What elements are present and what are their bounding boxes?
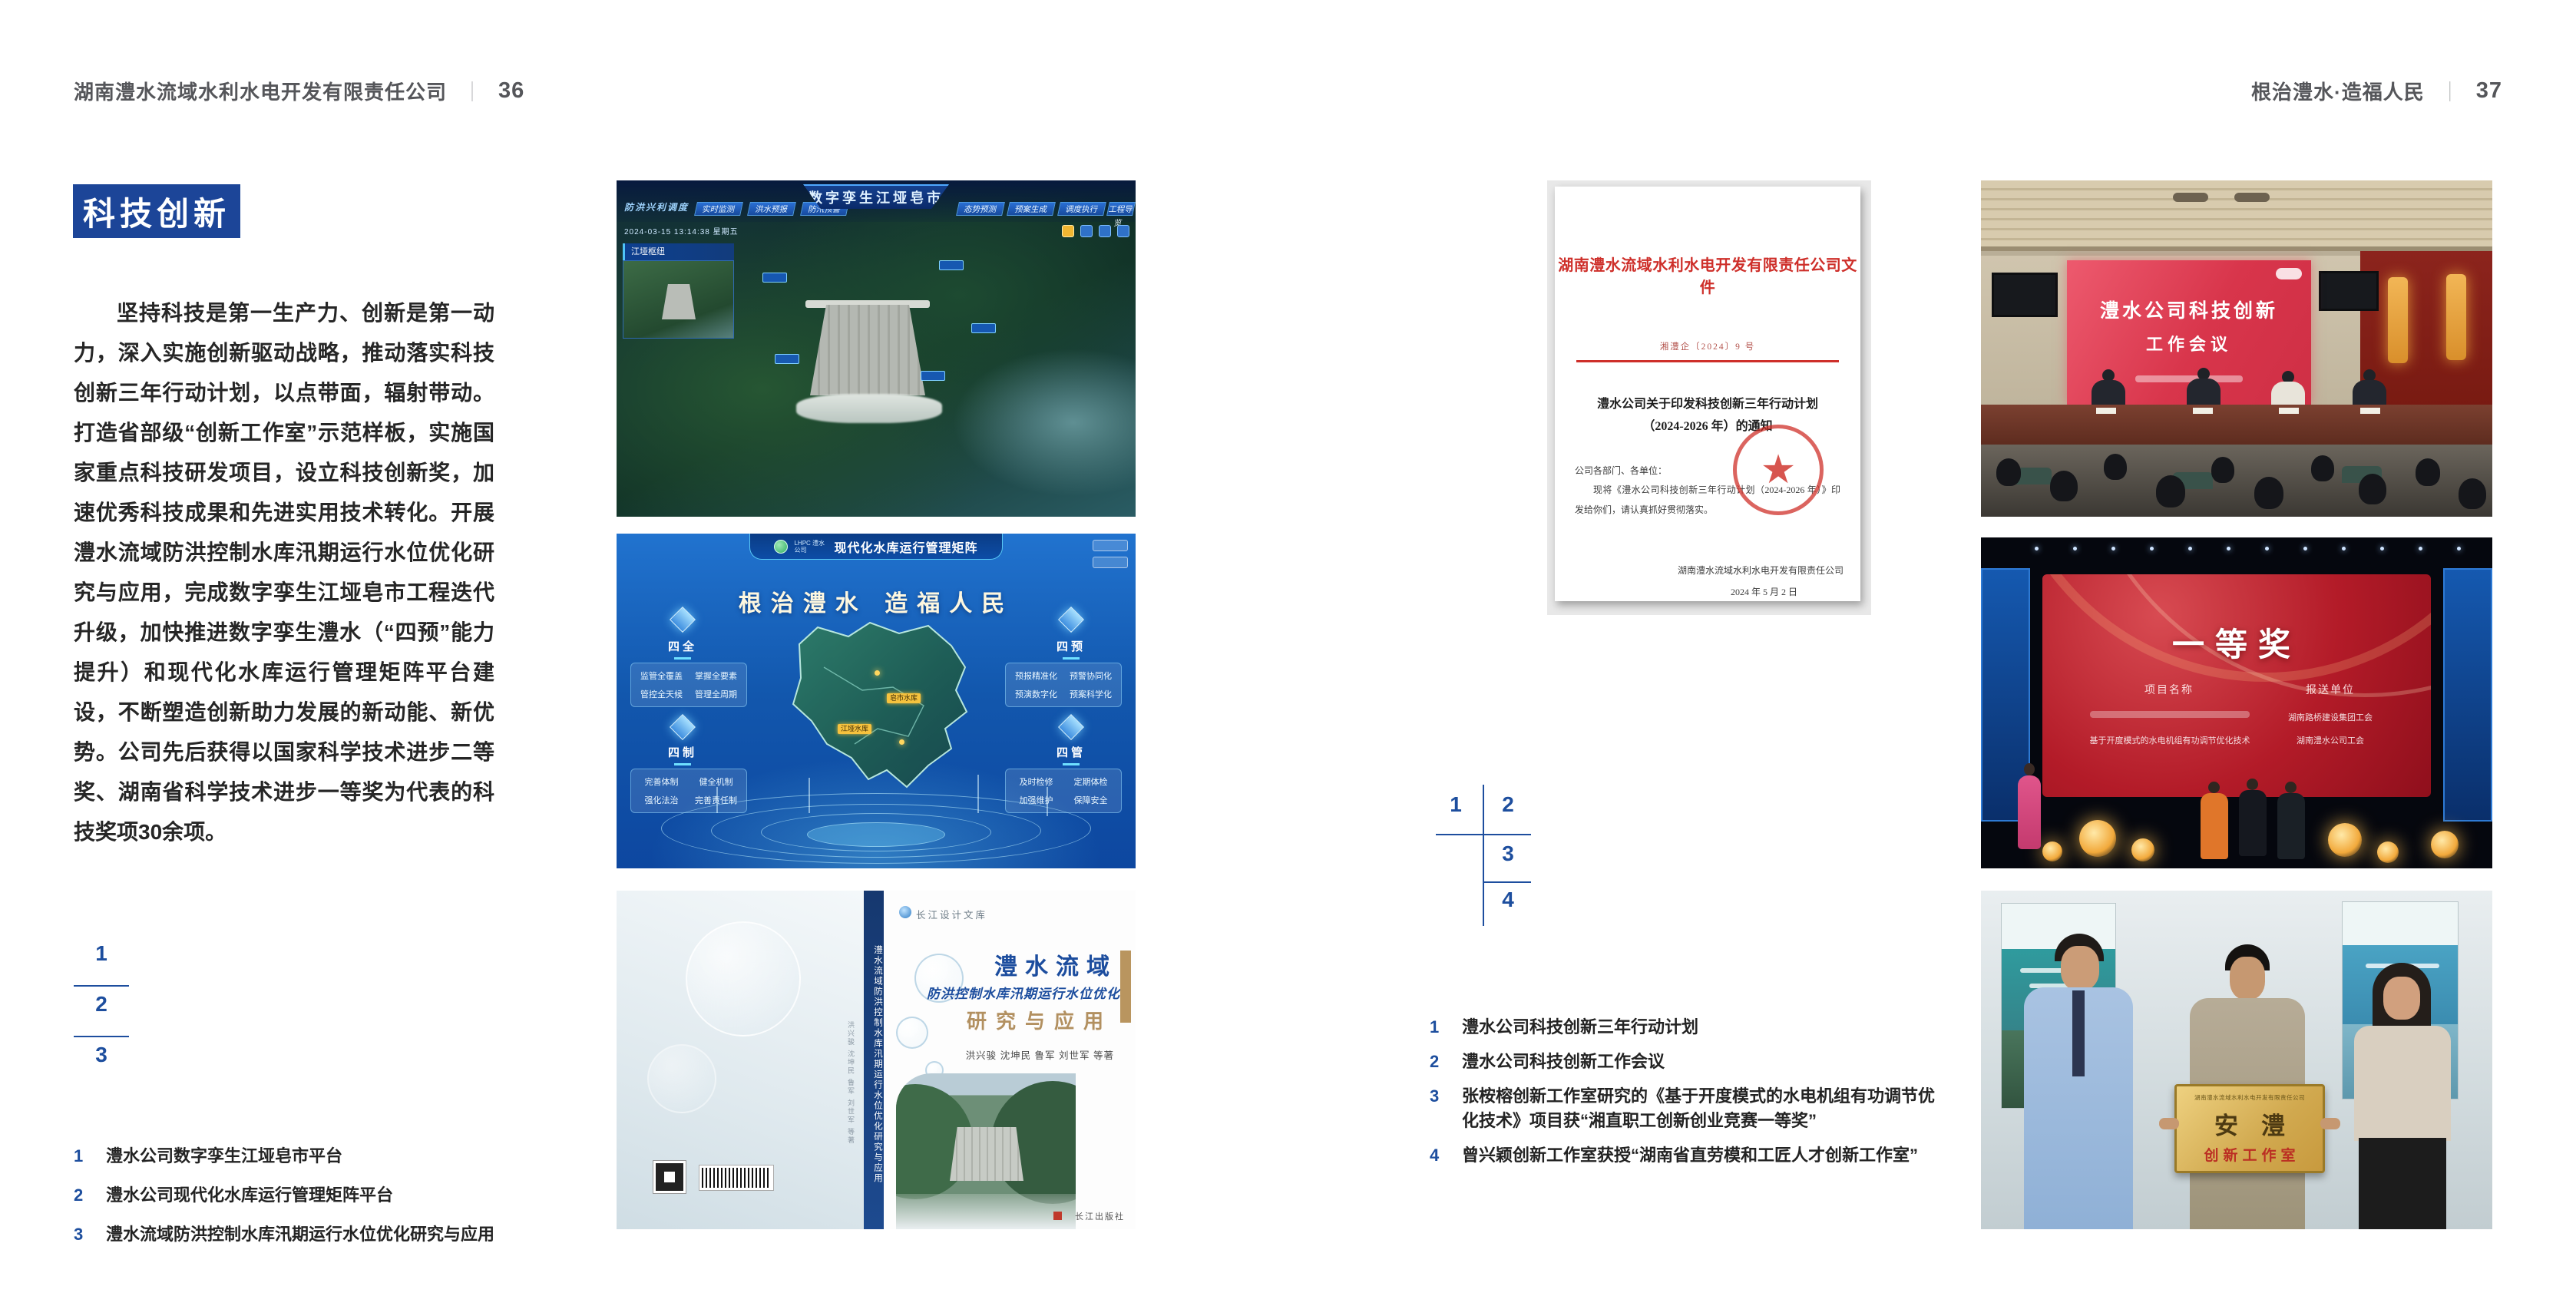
map-marker-chip (775, 354, 799, 364)
page-header-right: 根治澧水·造福人民 ｜ 37 (2251, 77, 2502, 105)
host-silhouette (2018, 775, 2041, 849)
bubble-graphic (647, 1044, 716, 1113)
poster-top (2002, 904, 2115, 949)
audience-head (2050, 471, 2078, 501)
ceiling-vent (2173, 193, 2208, 202)
paper-graphic (2193, 408, 2213, 414)
matrix-header: LHPC 澧水公司 现代化水库运行管理矩阵 (749, 534, 1003, 560)
person-tie (2072, 990, 2085, 1076)
audience-head (2211, 457, 2234, 483)
award-title: 一等奖 (2042, 619, 2431, 666)
alert-icon (1117, 225, 1129, 237)
figure-dashboard-screenshot: 防洪兴利调度 实时监测 洪水预报 防汛预警 数字孪生江垭皂市 态势预测 预案生成… (617, 180, 1136, 517)
magazine-spread: 湖南澧水流域水利水电开发有限责任公司 ｜ 36 根治澧水·造福人民 ｜ 37 科… (0, 0, 2576, 1306)
light-tick (977, 775, 979, 813)
caption-item: 4 曾兴颖创新工作室获授“湖南省直劳模和工匠人才创新工作室” (1430, 1143, 1952, 1168)
official-seal: ★ (1733, 425, 1824, 515)
cover-accent-bar (1120, 951, 1131, 1023)
book-back-authors: 洪兴骏 沈坤民 鲁军 刘世军 等著 (846, 1021, 856, 1145)
page-number-right: 37 (2476, 78, 2502, 104)
caption-text: 澧水公司数字孪生江垭皂市平台 (106, 1144, 342, 1168)
group-label: 四制 (644, 744, 721, 765)
dashboard-tab: 洪水预报 (747, 202, 796, 216)
screen-date-bar (2135, 375, 2243, 382)
document-signature: 湖南澧水流域水利水电开发有限责任公司 2024 年 5 月 2 日 (1555, 560, 1860, 603)
person-face (2230, 957, 2265, 1000)
award-screen: 一等奖 项目名称 报送单位 基于开度模式的水电机组有功调节优化技术 湖南路桥建设… (2042, 574, 2431, 797)
caption-list-right: 1 澧水公司科技创新三年行动计划 2 澧水公司科技创新工作会议 3 张桉榕创新工… (1430, 1015, 1952, 1178)
subject-line: 澧水公司关于印发科技创新三年行动计划 (1555, 393, 1860, 415)
index-number: 2 (1493, 792, 1523, 817)
stage-light (2380, 547, 2384, 551)
group-item: 定期体检 (1074, 775, 1108, 788)
book-publisher: 长江出版社 (1075, 1210, 1125, 1222)
index-divider (1436, 834, 1531, 835)
caption-item: 1 澧水公司数字孪生江垭皂市平台 (74, 1144, 550, 1168)
group-label: 四预 (1033, 638, 1109, 660)
light-tick (809, 778, 810, 813)
index-divider (1483, 881, 1531, 883)
group-panel: 监管全覆盖 掌握全要素 管控全天候 管理全周期 (630, 663, 747, 707)
dashboard-timestamp: 2024-03-15 13:14:38 星期五 (624, 225, 739, 236)
hand-graphic (2320, 1118, 2340, 1129)
series-logo-icon (899, 906, 911, 918)
stage-light (2188, 547, 2192, 551)
figure-official-document: 湖南澧水流域水利水电开发有限责任公司文件 湘澧企〔2024〕9 号 澧水公司关于… (1547, 180, 1871, 615)
map-marker-chip (921, 371, 945, 381)
gold-orb (2042, 841, 2062, 861)
group-icon (670, 714, 696, 740)
ceiling-graphic (1981, 180, 2492, 251)
dashboard-tab: 实时监测 (694, 202, 743, 216)
tailwater-graphic (796, 394, 942, 423)
lantern-light (2446, 274, 2466, 360)
person-suit (2277, 793, 2305, 859)
dashboard-tab: 态势预测 (956, 202, 1005, 216)
person-silhouette (2353, 380, 2386, 406)
intro-paragraph: 坚持科技是第一生产力、创新是第一动力，深入实施创新驱动战略，推动落实科技创新三年… (74, 293, 494, 852)
stage-light (2111, 547, 2115, 551)
person-silhouette (2092, 380, 2125, 406)
signer-name: 湖南澧水流域水利水电开发有限责任公司 (1555, 560, 1844, 581)
caption-number: 1 (74, 1144, 106, 1168)
index-divider (74, 985, 129, 987)
index-number: 3 (74, 1043, 129, 1067)
gold-orb (2079, 820, 2116, 857)
award-unit-row: 湖南澧水公司工会 (2265, 734, 2396, 746)
plaque-company-line: 湖南澧水流域水利水电开发有限责任公司 (2177, 1093, 2323, 1102)
audience-head (2156, 475, 2185, 508)
caption-number: 2 (1430, 1050, 1462, 1074)
stage-light (2227, 547, 2230, 551)
document-red-title: 湖南澧水流域水利水电开发有限责任公司文件 (1555, 253, 1860, 297)
dam-graphic (950, 1127, 1023, 1181)
photo-award-ceremony: 一等奖 项目名称 报送单位 基于开度模式的水电机组有功调节优化技术 湖南路桥建设… (1981, 537, 2492, 868)
book-front-cover: 长江设计文库 澧水流域 防洪控制水库汛期运行水位优化 研究与应用 洪兴骏 沈坤民… (884, 891, 1136, 1229)
group-item: 及时检修 (1020, 775, 1053, 788)
map-marker-chip (939, 260, 964, 270)
reservoir-marker: 皂市水库 (887, 693, 921, 703)
book-title-sub: 防洪控制水库汛期运行水位优化 (927, 983, 1120, 1002)
host-silhouette (2024, 763, 2035, 775)
locate-icon (1099, 225, 1111, 237)
caption-number: 2 (74, 1183, 106, 1207)
audience-head (2459, 478, 2486, 509)
caption-number: 3 (74, 1222, 106, 1246)
dashboard-corner-label: 防洪兴利调度 (624, 200, 689, 213)
stage-light (2073, 547, 2077, 551)
blurred-row-graphic (2090, 711, 2250, 718)
paper-graphic (2279, 408, 2299, 414)
screen-title-line2: 工作会议 (2067, 331, 2311, 355)
index-number: 4 (1493, 888, 1523, 912)
dashboard-panel-photo (623, 260, 734, 339)
person-face (2061, 946, 2099, 990)
barcode (699, 1165, 773, 1190)
index-number: 1 (1440, 792, 1471, 817)
matrix-button (1093, 557, 1128, 568)
hand-graphic (2159, 1118, 2179, 1129)
light-tick (1047, 787, 1048, 816)
bubble-graphic (686, 921, 801, 1037)
dam-photo-inset (896, 1073, 1076, 1229)
group-item: 掌握全要素 (695, 670, 737, 682)
innovation-plaque: 湖南澧水流域水利水电开发有限责任公司 安澧 创新工作室 (2174, 1084, 2325, 1173)
caption-item: 3 张桉榕创新工作室研究的《基于开度模式的水电机组有功调节优化技术》项目获“湘直… (1430, 1084, 1952, 1133)
poster-top (2343, 902, 2458, 945)
qr-code (653, 1161, 686, 1193)
group-item: 管控全天候 (640, 688, 683, 700)
caption-number: 4 (1430, 1143, 1462, 1168)
group-item: 预报精准化 (1015, 670, 1057, 682)
person-shirt-beige (2354, 1026, 2451, 1141)
star-icon: ★ (1761, 447, 1797, 493)
caption-item: 1 澧水公司科技创新三年行动计划 (1430, 1015, 1952, 1040)
person-suit (2239, 790, 2267, 856)
caption-text: 澧水流域防洪控制水库汛期运行水位优化研究与应用 (106, 1222, 494, 1246)
screen-logo-icon (2276, 268, 2302, 279)
motto: 根治澧水·造福人民 (2251, 77, 2425, 105)
index-number: 2 (74, 992, 129, 1017)
wall-tv (2319, 271, 2379, 311)
company-logo-icon (774, 540, 788, 554)
group-label: 四管 (1033, 744, 1109, 765)
document-subject: 澧水公司关于印发科技创新三年行动计划 （2024-2026 年）的通知 (1555, 393, 1860, 438)
caption-number: 1 (1430, 1015, 1462, 1040)
book-title-main: 澧水流域 (994, 947, 1117, 981)
document-date: 2024 年 5 月 2 日 (1555, 581, 1844, 603)
group-icon (1058, 714, 1084, 740)
map-marker-chip (971, 323, 996, 333)
ripple-core (807, 822, 945, 847)
screen-title-line1: 澧水公司科技创新 (2067, 296, 2311, 323)
caption-list-left: 1 澧水公司数字孪生江垭皂市平台 2 澧水公司现代化水库运行管理矩阵平台 3 澧… (74, 1144, 550, 1261)
person-silhouette (2285, 782, 2297, 793)
audience-head (2416, 458, 2440, 486)
book-authors: 洪兴骏 沈坤民 鲁军 刘世军 等著 (966, 1047, 1114, 1062)
book-spine-title: 澧水流域防洪控制水库汛期运行水位优化研究与应用 (864, 891, 884, 1229)
stage-light (2342, 547, 2346, 551)
audience-head (2254, 477, 2283, 509)
section-title-badge: 科技创新 (73, 184, 240, 238)
map-marker-chip (762, 273, 787, 283)
rostrum-table (1981, 405, 2492, 445)
audience-head (2359, 474, 2386, 504)
audience-area (1981, 445, 2492, 517)
caption-text: 澧水公司科技创新工作会议 (1462, 1050, 1665, 1074)
stage-light (2035, 547, 2039, 551)
award-column-header: 项目名称 (2104, 682, 2234, 697)
person-face (2383, 977, 2420, 1020)
header-separator: ｜ (462, 77, 483, 105)
reservoir-dot (899, 739, 904, 745)
caption-text: 张桉榕创新工作室研究的《基于开度模式的水电机组有功调节优化技术》项目获“湘直职工… (1462, 1084, 1936, 1133)
dashboard-tab: 预案生成 (1007, 202, 1056, 216)
gold-orb (2377, 841, 2399, 863)
group-item: 管理全周期 (695, 688, 737, 700)
book-title-tail: 研究与应用 (967, 1006, 1113, 1034)
dashboard-panel-title: 江垭枢纽 (623, 243, 734, 260)
index-number: 1 (74, 941, 129, 966)
figure-book-cover: 洪兴骏 沈坤民 鲁军 刘世军 等著 澧水流域防洪控制水库汛期运行水位优化研究与应… (617, 891, 1136, 1229)
dashboard-tab: 调度执行 (1057, 202, 1106, 216)
matrix-button (1093, 540, 1128, 551)
group-item: 完善体制 (645, 775, 679, 788)
caption-item: 3 澧水流域防洪控制水库汛期运行水位优化研究与应用 (74, 1222, 550, 1246)
matrix-logo-text: LHPC 澧水公司 (794, 540, 828, 554)
group-panel: 预报精准化 预警协同化 预演数字化 预案科学化 (1005, 663, 1122, 707)
page-number-left: 36 (498, 78, 524, 104)
index-divider (74, 1036, 129, 1037)
dashboard-tab: 工程导览 (1106, 202, 1136, 216)
index-divider (1483, 785, 1484, 926)
company-name: 湖南澧水流域水利水电开发有限责任公司 (74, 77, 447, 105)
light-tick (716, 787, 718, 813)
audience-head (2104, 454, 2127, 480)
award-column-header: 报送单位 (2265, 682, 2396, 697)
group-item: 预演数字化 (1015, 688, 1057, 700)
group-item: 健全机制 (699, 775, 733, 788)
publisher-logo-icon (1053, 1212, 1062, 1220)
award-unit-row: 湖南路桥建设集团工会 (2265, 711, 2396, 723)
stage-side-panel (2443, 568, 2492, 822)
layers-icon (1080, 225, 1093, 237)
stage-light (2265, 547, 2269, 551)
person-silhouette (2208, 782, 2220, 793)
group-item: 预案科学化 (1070, 688, 1112, 700)
paper-graphic (2360, 408, 2380, 414)
water-foam-graphic (896, 1194, 1076, 1229)
stage-light (2419, 547, 2422, 551)
group-item: 预警协同化 (1070, 670, 1112, 682)
book-series: 长江设计文库 (916, 907, 987, 921)
dashboard-title: 数字孪生江垭皂市 (803, 184, 949, 209)
ceiling-vent (2234, 193, 2270, 202)
person-orange-jacket (2201, 793, 2228, 859)
caption-item: 2 澧水公司现代化水库运行管理矩阵平台 (74, 1183, 550, 1207)
page-header-left: 湖南澧水流域水利水电开发有限责任公司 ｜ 36 (74, 77, 524, 105)
matrix-title: 现代化水库运行管理矩阵 (834, 537, 977, 556)
stage-light (2457, 547, 2461, 551)
person-silhouette (2247, 779, 2258, 790)
paper-graphic (2096, 408, 2116, 414)
person-skirt-black (2359, 1138, 2446, 1229)
reservoir-dot (875, 670, 880, 676)
audience-head (2311, 455, 2334, 481)
caption-text: 曾兴颖创新工作室获授“湖南省直劳模和工匠人才创新工作室” (1462, 1143, 1918, 1168)
lantern-light (2388, 277, 2408, 363)
mini-dam-graphic (662, 284, 696, 319)
group-item: 保障安全 (1074, 794, 1108, 806)
stage-light (2303, 547, 2307, 551)
gold-orb (2328, 823, 2362, 857)
group-item: 监管全覆盖 (640, 670, 683, 682)
photo-plaque-group: 湖南澧水流域水利水电开发有限责任公司 安澧 创新工作室 (1981, 891, 2492, 1229)
wall-tv (1992, 273, 2058, 317)
award-project-row: 基于开度模式的水电机组有功调节优化技术 (2065, 734, 2274, 746)
person-silhouette (2271, 382, 2305, 408)
group-item: 强化法治 (645, 794, 679, 806)
reservoir-marker: 江垭水库 (838, 724, 871, 734)
bubble-graphic (896, 1017, 928, 1049)
gold-orb (2131, 838, 2154, 861)
audience-head (1996, 458, 2021, 486)
subject-line: （2024-2026 年）的通知 (1555, 415, 1860, 438)
group-label: 四全 (644, 638, 721, 660)
caption-text: 澧水公司现代化水库运行管理矩阵平台 (106, 1183, 393, 1207)
basin-map-graphic (778, 613, 974, 798)
caption-item: 2 澧水公司科技创新工作会议 (1430, 1050, 1952, 1074)
index-number: 3 (1493, 841, 1523, 866)
plaque-label: 创新工作室 (2177, 1144, 2323, 1165)
stage-light (2150, 547, 2154, 551)
caption-text: 澧水公司科技创新三年行动计划 (1462, 1015, 1698, 1040)
header-separator: ｜ (2440, 77, 2461, 105)
caption-number: 3 (1430, 1084, 1462, 1133)
user-icon (1062, 225, 1074, 237)
photo-meeting: 澧水公司科技创新 工作会议 (1981, 180, 2492, 517)
document-number: 湘澧企〔2024〕9 号 (1555, 340, 1860, 352)
dam-graphic (810, 305, 925, 395)
gold-orb (2431, 831, 2459, 858)
document-red-rule (1576, 360, 1839, 362)
plaque-name: 安澧 (2177, 1106, 2323, 1141)
book-back-cover: 洪兴骏 沈坤民 鲁军 刘世军 等著 (617, 891, 864, 1229)
person-silhouette (2187, 379, 2221, 405)
document-page: 湖南澧水流域水利水电开发有限责任公司文件 湘澧企〔2024〕9 号 澧水公司关于… (1555, 187, 1860, 601)
figure-matrix-screenshot: LHPC 澧水公司 现代化水库运行管理矩阵 根治澧水 造福人民 四全 监管全覆盖… (617, 534, 1136, 868)
